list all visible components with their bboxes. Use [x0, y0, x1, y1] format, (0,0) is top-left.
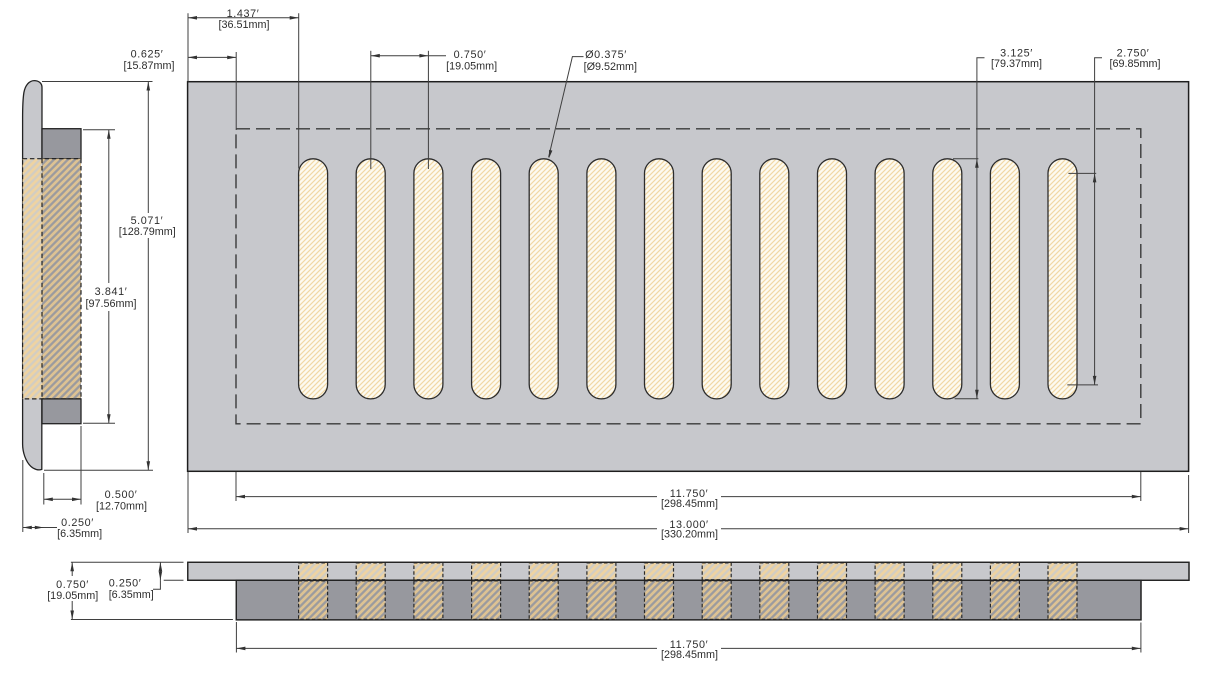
svg-text:[12.70mm]: [12.70mm] — [96, 501, 147, 513]
svg-text:[36.51mm]: [36.51mm] — [218, 19, 269, 31]
svg-text:Ø0.375′: Ø0.375′ — [585, 49, 627, 61]
svg-text:[Ø9.52mm]: [Ø9.52mm] — [584, 61, 637, 73]
svg-text:[6.35mm]: [6.35mm] — [109, 589, 154, 601]
svg-text:[19.05mm]: [19.05mm] — [446, 60, 497, 72]
svg-text:[19.05mm]: [19.05mm] — [47, 590, 98, 602]
svg-text:[79.37mm]: [79.37mm] — [991, 58, 1042, 70]
svg-text:[6.35mm]: [6.35mm] — [57, 528, 102, 540]
svg-text:0.625′: 0.625′ — [131, 49, 164, 61]
svg-text:1.437′: 1.437′ — [227, 8, 260, 20]
svg-text:[69.85mm]: [69.85mm] — [1109, 58, 1160, 70]
svg-text:3.841′: 3.841′ — [95, 286, 128, 298]
svg-text:5.071′: 5.071′ — [131, 215, 164, 227]
svg-text:[97.56mm]: [97.56mm] — [85, 298, 136, 310]
svg-text:0.500′: 0.500′ — [105, 489, 138, 501]
svg-text:[298.45mm]: [298.45mm] — [661, 498, 718, 510]
svg-text:0.250′: 0.250′ — [109, 577, 142, 589]
svg-text:[298.45mm]: [298.45mm] — [661, 649, 718, 661]
svg-text:[330.20mm]: [330.20mm] — [661, 529, 718, 541]
svg-text:[128.79mm]: [128.79mm] — [119, 226, 176, 238]
svg-text:[15.87mm]: [15.87mm] — [123, 60, 174, 72]
